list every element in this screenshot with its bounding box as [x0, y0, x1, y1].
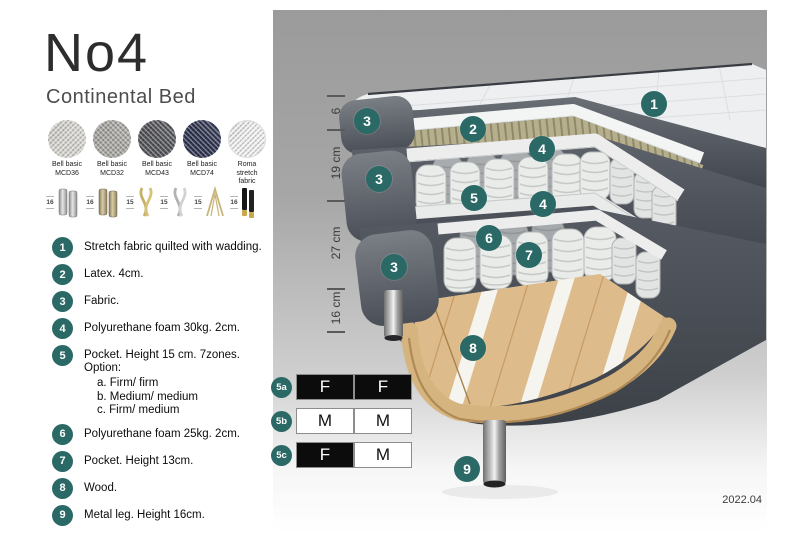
- pocket-option-b: b. Medium/ medium: [97, 391, 274, 405]
- leg-option: 15: [126, 185, 156, 219]
- firmness-cell: F: [353, 375, 411, 399]
- legend-item: 7 Pocket. Height 13cm.: [52, 451, 274, 472]
- legend-item: 1 Stretch fabric quilted with wadding.: [52, 237, 274, 258]
- diagram-badge: 1: [641, 91, 667, 117]
- diagram-badge: 3: [381, 254, 407, 280]
- item-text: Stretch fabric quilted with wadding.: [84, 237, 262, 254]
- item-text: Fabric.: [84, 291, 119, 308]
- item-text: Wood.: [84, 478, 117, 495]
- leg-height: 15: [126, 194, 134, 211]
- fabric-swatch: Bell basic MCD74: [182, 120, 222, 187]
- fabric-code: MCD36: [55, 170, 79, 177]
- leg-height: 15: [194, 194, 202, 211]
- fabric-code: MCD74: [190, 170, 214, 177]
- item-number-badge: 4: [52, 318, 73, 339]
- legend-item: 3 Fabric.: [52, 291, 274, 312]
- leg-option: 16: [46, 185, 82, 219]
- product-sheet: No4 Continental Bed Bell basic MCD36 Bel…: [0, 0, 800, 533]
- leg-icon-tapered-black-gold: [240, 185, 256, 219]
- page-title: No4: [44, 22, 149, 84]
- firmness-option-5c: 5c F M: [271, 442, 412, 468]
- firmness-cell: F: [297, 443, 353, 467]
- item-text: Polyurethane foam 30kg. 2cm.: [84, 318, 240, 335]
- diagram-badge: 2: [460, 116, 486, 142]
- diagram-badge: 4: [529, 136, 555, 162]
- item-number-badge: 5: [52, 345, 73, 366]
- fabric-swatch-circle: [138, 120, 176, 158]
- leg-option: 16: [230, 185, 256, 219]
- floor-shadow: [442, 485, 558, 499]
- diagram-badge: 3: [354, 108, 380, 134]
- firmness-box: F M: [296, 442, 412, 468]
- item-text: Pocket. Height 15 cm. 7zones. Option: a.…: [84, 345, 274, 418]
- firmness-box: F F: [296, 374, 412, 400]
- fabric-swatch: Bell basic MCD43: [137, 120, 177, 187]
- legend-item: 6 Polyurethane foam 25kg. 2cm.: [52, 424, 274, 445]
- firmness-option-5a: 5a F F: [271, 374, 412, 400]
- pocket-options: a. Firm/ firm b. Medium/ medium c. Firm/…: [97, 377, 274, 418]
- firmness-cell: M: [353, 443, 411, 467]
- leg-option: 15: [160, 185, 190, 219]
- fabric-name: Bell basic: [97, 161, 127, 168]
- diagram-badge: 7: [516, 242, 542, 268]
- item-number-badge: 1: [52, 237, 73, 258]
- measure-tick: [327, 200, 345, 202]
- metal-leg-left: [384, 290, 403, 341]
- fabric-swatch-circle: [228, 120, 266, 158]
- firmness-badge: 5b: [271, 411, 292, 432]
- leg-option: 15: [194, 185, 226, 219]
- leg-height: 15: [160, 194, 168, 211]
- fabric-name: Bell basic: [142, 161, 172, 168]
- diagram-badge: 9: [454, 456, 480, 482]
- fabric-code: stretch fabric: [236, 170, 257, 186]
- fabric-swatch: Bell basic MCD32: [92, 120, 132, 187]
- diagram-badge: 4: [530, 191, 556, 217]
- pocket-option-c: c. Firm/ medium: [97, 404, 274, 418]
- page-subtitle: Continental Bed: [46, 86, 196, 109]
- measure-label-base: 27 cm: [329, 213, 343, 273]
- legend-item: 2 Latex. 4cm.: [52, 264, 274, 285]
- item-number-badge: 3: [52, 291, 73, 312]
- fabric-name: Bell basic: [52, 161, 82, 168]
- fabric-name: Bell basic: [187, 161, 217, 168]
- item-text: Latex. 4cm.: [84, 264, 143, 281]
- leg-icon-cylinder-silver: [56, 185, 82, 219]
- firmness-badge: 5c: [271, 445, 292, 466]
- fabric-code: MCD43: [145, 170, 169, 177]
- fabric-swatch-circle: [183, 120, 221, 158]
- firmness-cell: F: [297, 375, 353, 399]
- leg-icon-hairpin-gold: [204, 185, 226, 219]
- item-number-badge: 9: [52, 505, 73, 526]
- firmness-option-5b: 5b M M: [271, 408, 412, 434]
- item-number-badge: 2: [52, 264, 73, 285]
- fabric-swatch-circle: [48, 120, 86, 158]
- fabric-code: MCD32: [100, 170, 124, 177]
- measure-label-latex: 6: [329, 81, 343, 141]
- measure-label-leg: 16 cm: [329, 278, 343, 338]
- version-label: 2022.04: [690, 494, 762, 506]
- fabric-swatches: Bell basic MCD36 Bell basic MCD32 Bell b…: [47, 120, 267, 187]
- item-text-main: Pocket. Height 15 cm. 7zones. Option:: [84, 349, 240, 374]
- leg-height: 16: [46, 194, 54, 211]
- item-number-badge: 8: [52, 478, 73, 499]
- leg-options: 16 16 15 15: [46, 185, 256, 219]
- item-number-badge: 6: [52, 424, 73, 445]
- fabric-swatch-circle: [93, 120, 131, 158]
- pocket-option-a: a. Firm/ firm: [97, 377, 274, 391]
- firmness-badge: 5a: [271, 377, 292, 398]
- leg-height: 16: [230, 194, 238, 211]
- item-number-badge: 7: [52, 451, 73, 472]
- firmness-cell: M: [297, 409, 353, 433]
- legend-item: 9 Metal leg. Height 16cm.: [52, 505, 274, 526]
- leg-height: 16: [86, 194, 94, 211]
- measure-label-mattress: 19 cm: [329, 133, 343, 193]
- diagram-badge: 8: [460, 335, 486, 361]
- fabric-swatch: Roma stretch fabric: [227, 120, 267, 187]
- item-text: Pocket. Height 13cm.: [84, 451, 193, 468]
- leg-icon-wave-silver: [170, 185, 190, 219]
- diagram-badge: 6: [476, 225, 502, 251]
- legend-item: 5 Pocket. Height 15 cm. 7zones. Option: …: [52, 345, 274, 418]
- parts-legend: 1 Stretch fabric quilted with wadding. 2…: [52, 237, 274, 532]
- legend-item: 8 Wood.: [52, 478, 274, 499]
- legend-item: 4 Polyurethane foam 30kg. 2cm.: [52, 318, 274, 339]
- leg-icon-wave-gold: [136, 185, 156, 219]
- item-text: Polyurethane foam 25kg. 2cm.: [84, 424, 240, 441]
- diagram-badge: 3: [366, 166, 392, 192]
- item-text: Metal leg. Height 16cm.: [84, 505, 205, 522]
- leg-option: 16: [86, 185, 122, 219]
- firmness-cell: M: [353, 409, 411, 433]
- firmness-box: M M: [296, 408, 412, 434]
- fabric-swatch: Bell basic MCD36: [47, 120, 87, 187]
- diagram-badge: 5: [461, 185, 487, 211]
- leg-icon-cylinder-brass: [96, 185, 122, 219]
- metal-leg-front: [483, 420, 506, 488]
- fabric-name: Roma: [238, 161, 257, 168]
